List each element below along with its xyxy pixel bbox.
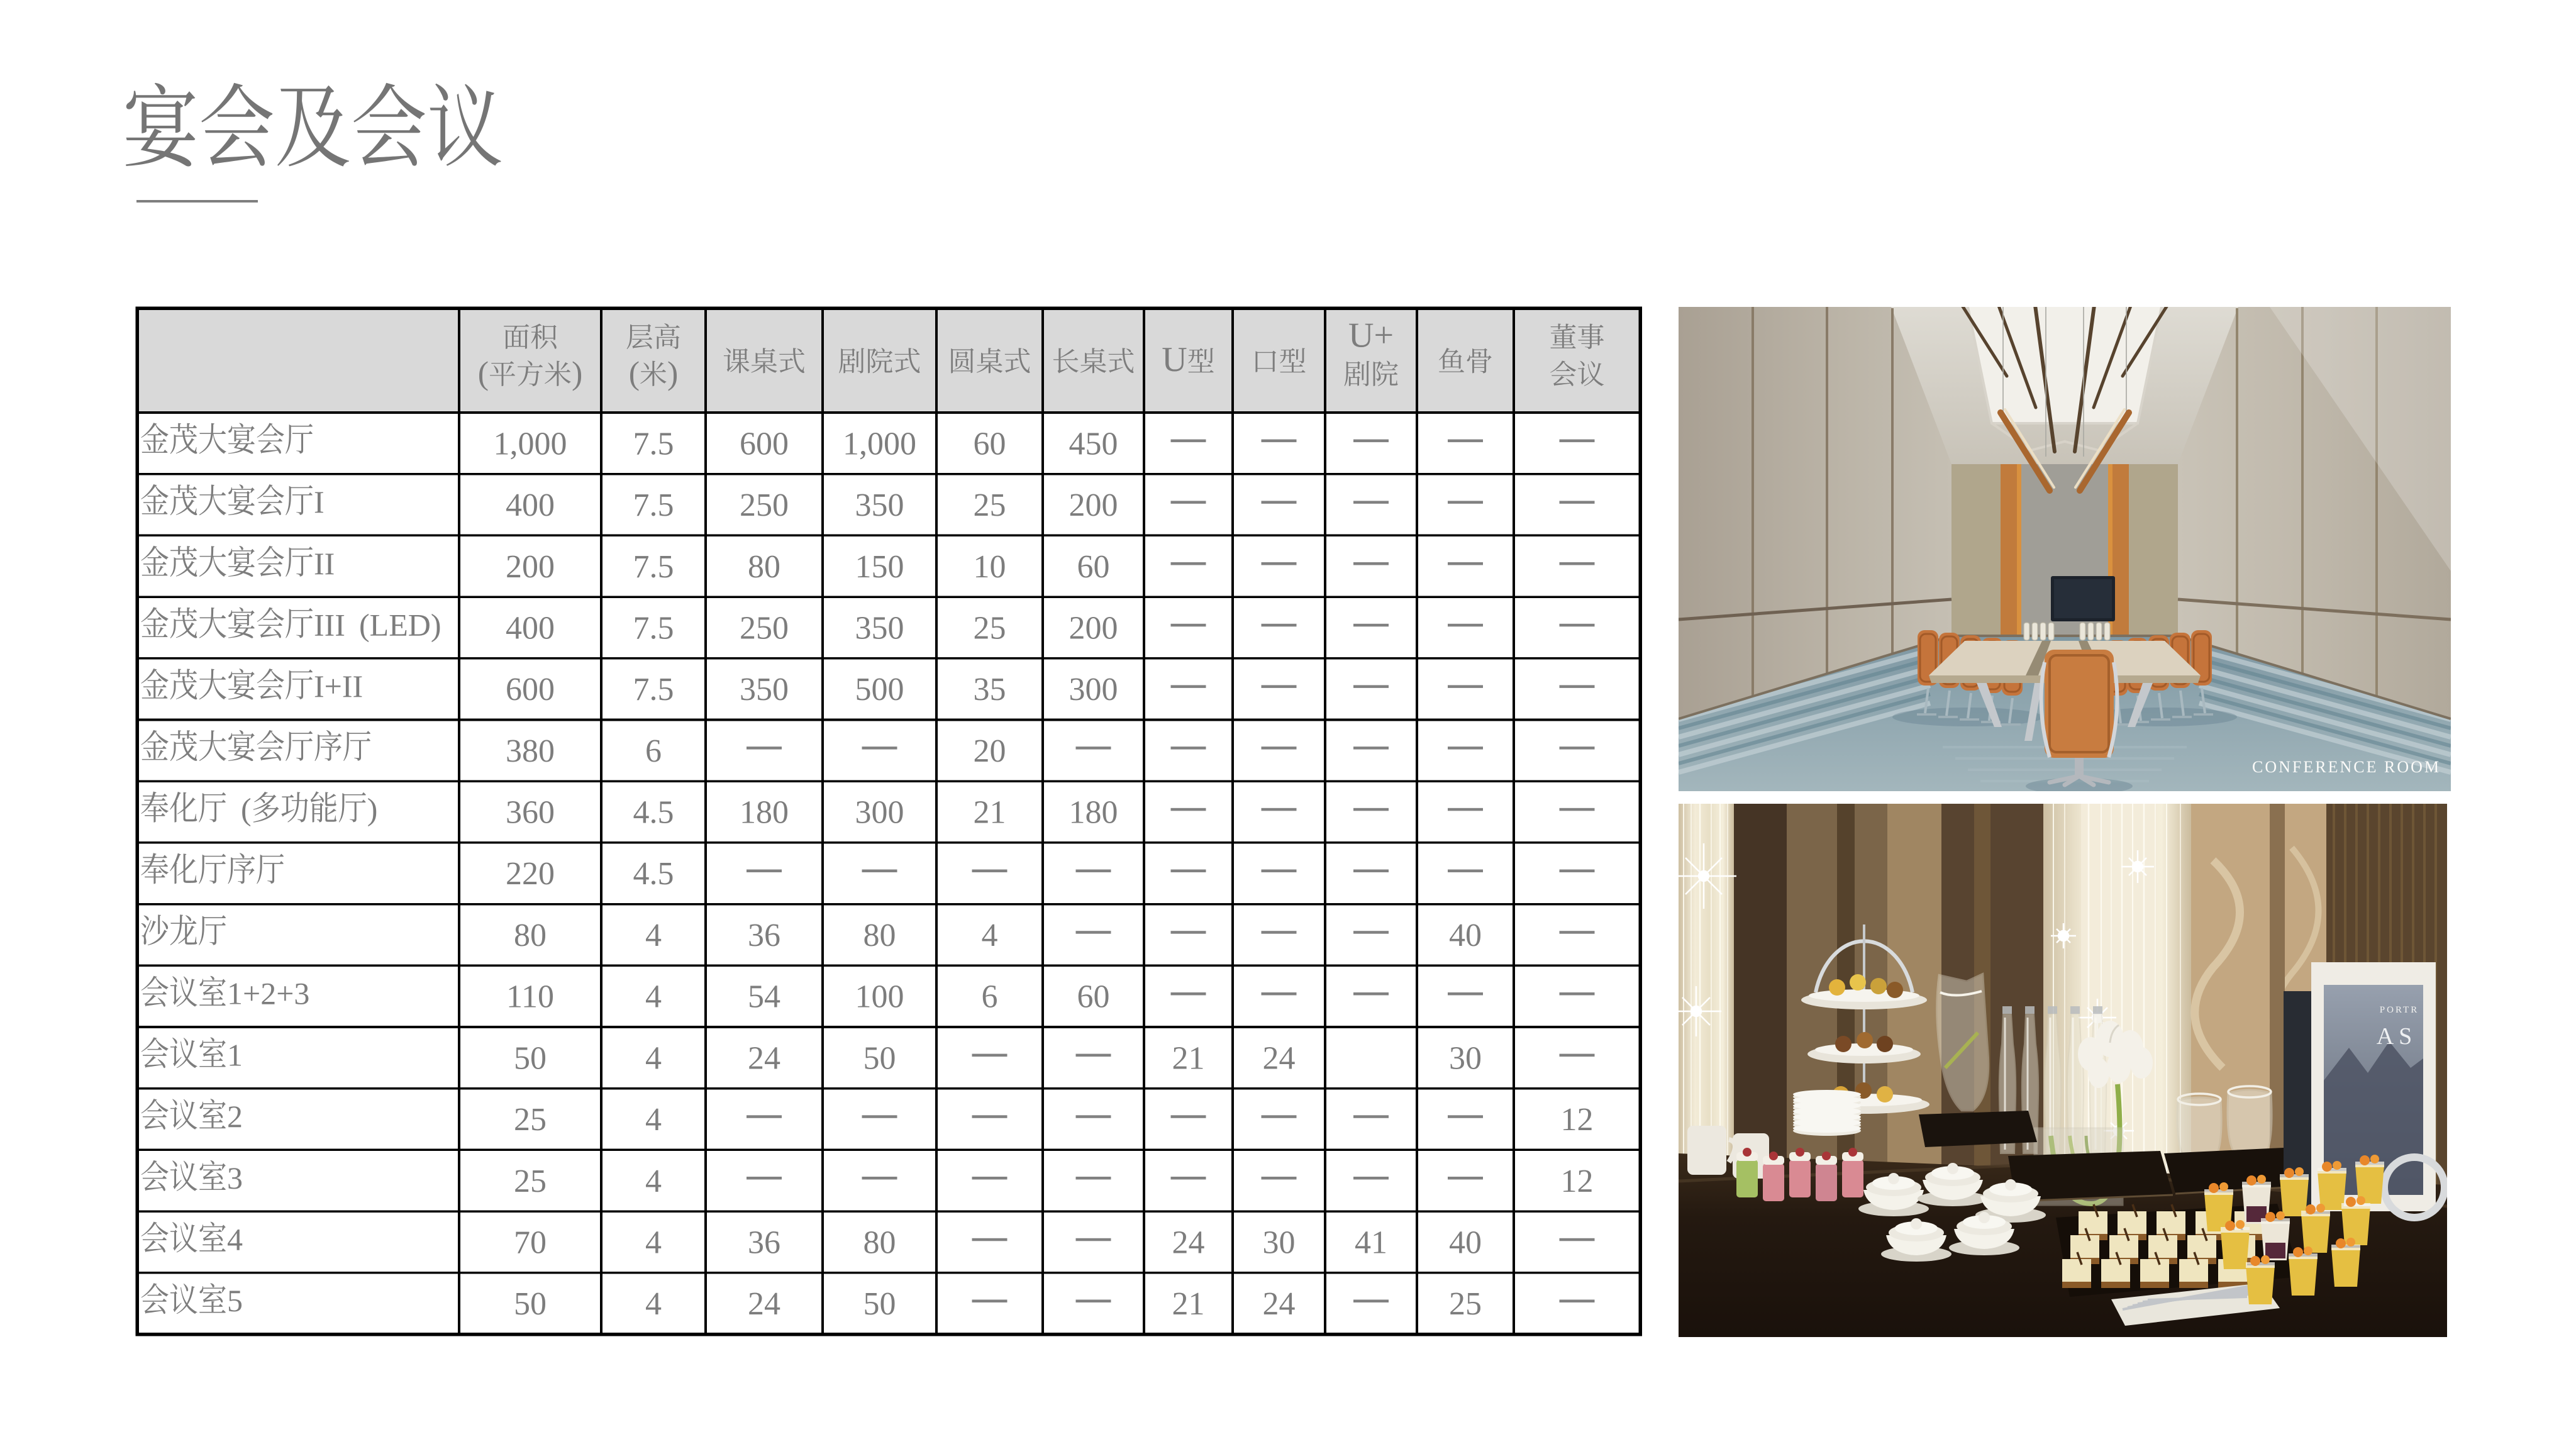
svg-text:4: 4: [645, 979, 662, 1015]
svg-text:40: 40: [1449, 1225, 1482, 1261]
svg-text:180: 180: [1069, 795, 1118, 831]
svg-text:150: 150: [855, 549, 904, 585]
svg-text:220: 220: [506, 856, 555, 892]
svg-text:40: 40: [1449, 918, 1482, 953]
svg-text:7.5: 7.5: [633, 611, 674, 647]
svg-text:350: 350: [740, 672, 789, 708]
svg-text:50: 50: [514, 1040, 547, 1076]
svg-text:5: 5: [227, 1283, 243, 1318]
svg-text:30: 30: [1449, 1040, 1482, 1076]
svg-text:400: 400: [506, 611, 555, 647]
svg-text:II: II: [314, 546, 335, 581]
svg-text:): ): [572, 356, 582, 392]
svg-text:25: 25: [974, 487, 1006, 523]
svg-text:600: 600: [740, 426, 789, 462]
svg-text:1+2+3: 1+2+3: [227, 976, 309, 1011]
svg-text:24: 24: [1263, 1040, 1296, 1076]
svg-text:4.5: 4.5: [633, 795, 674, 831]
svg-text:41: 41: [1355, 1225, 1387, 1261]
svg-text:360: 360: [506, 795, 555, 831]
svg-text:180: 180: [740, 795, 789, 831]
svg-text:300: 300: [1069, 672, 1118, 708]
svg-text:80: 80: [514, 918, 547, 953]
svg-text:100: 100: [855, 979, 904, 1015]
svg-text:24: 24: [748, 1040, 780, 1076]
svg-text:25: 25: [514, 1163, 547, 1199]
svg-text:U: U: [1162, 340, 1187, 379]
svg-text:(: (: [478, 356, 489, 392]
svg-text:60: 60: [1077, 979, 1110, 1015]
svg-text:(LED): (LED): [359, 608, 441, 643]
svg-text:36: 36: [748, 918, 780, 953]
svg-text:60: 60: [974, 426, 1006, 462]
svg-text:50: 50: [863, 1286, 896, 1322]
svg-text:6: 6: [645, 733, 662, 769]
svg-text:30: 30: [1263, 1225, 1296, 1261]
svg-text:400: 400: [506, 487, 555, 523]
svg-text:3: 3: [227, 1160, 243, 1196]
svg-text:50: 50: [863, 1040, 896, 1076]
svg-text:25: 25: [514, 1102, 547, 1138]
svg-text:4: 4: [645, 1286, 662, 1322]
svg-text:12: 12: [1561, 1163, 1594, 1199]
svg-text:4: 4: [227, 1222, 243, 1257]
svg-text:250: 250: [740, 611, 789, 647]
svg-text:I+II: I+II: [314, 669, 363, 704]
svg-text:200: 200: [1069, 611, 1118, 647]
svg-text:350: 350: [855, 611, 904, 647]
svg-text:4: 4: [645, 1102, 662, 1138]
svg-text:380: 380: [506, 733, 555, 769]
svg-text:7.5: 7.5: [633, 549, 674, 585]
svg-text:12: 12: [1561, 1102, 1594, 1138]
svg-text:III: III: [314, 608, 345, 643]
svg-text:60: 60: [1077, 549, 1110, 585]
svg-text:20: 20: [974, 733, 1006, 769]
svg-text:1: 1: [227, 1037, 243, 1072]
svg-text:25: 25: [974, 611, 1006, 647]
svg-text:AS: AS: [2377, 1023, 2418, 1050]
svg-text:24: 24: [748, 1286, 780, 1322]
svg-text:24: 24: [1263, 1286, 1296, 1322]
svg-text:50: 50: [514, 1286, 547, 1322]
svg-text:24: 24: [1172, 1225, 1205, 1261]
svg-text:): ): [367, 792, 378, 827]
svg-text:1,000: 1,000: [494, 426, 567, 462]
svg-text:70: 70: [514, 1225, 547, 1261]
svg-text:7.5: 7.5: [633, 672, 674, 708]
svg-text:21: 21: [974, 795, 1006, 831]
svg-text:(: (: [629, 356, 640, 392]
svg-text:35: 35: [974, 672, 1006, 708]
svg-text:PORTR: PORTR: [2380, 1005, 2419, 1015]
svg-text:350: 350: [855, 487, 904, 523]
svg-text:200: 200: [506, 549, 555, 585]
svg-text:4: 4: [645, 1040, 662, 1076]
svg-text:U+: U+: [1348, 316, 1394, 355]
svg-text:4: 4: [645, 918, 662, 953]
svg-text:21: 21: [1172, 1040, 1205, 1076]
svg-text:1,000: 1,000: [843, 426, 916, 462]
svg-text:21: 21: [1172, 1286, 1205, 1322]
svg-text:80: 80: [863, 1225, 896, 1261]
svg-text:80: 80: [863, 918, 896, 953]
svg-text:CONFERENCE ROOM: CONFERENCE ROOM: [2252, 758, 2441, 776]
svg-text:4.5: 4.5: [633, 856, 674, 892]
svg-text:(: (: [241, 792, 252, 827]
svg-text:54: 54: [748, 979, 780, 1015]
svg-text:7.5: 7.5: [633, 426, 674, 462]
svg-text:36: 36: [748, 1225, 780, 1261]
svg-text:10: 10: [974, 549, 1006, 585]
svg-text:I: I: [314, 484, 325, 519]
svg-text:2: 2: [227, 1099, 243, 1134]
svg-text:300: 300: [855, 795, 904, 831]
svg-text:250: 250: [740, 487, 789, 523]
svg-text:600: 600: [506, 672, 555, 708]
svg-text:110: 110: [506, 979, 554, 1015]
svg-text:80: 80: [748, 549, 780, 585]
svg-text:4: 4: [982, 918, 998, 953]
svg-text:200: 200: [1069, 487, 1118, 523]
svg-text:4: 4: [645, 1163, 662, 1199]
svg-text:500: 500: [855, 672, 904, 708]
svg-text:6: 6: [982, 979, 998, 1015]
svg-text:450: 450: [1069, 426, 1118, 462]
svg-text:25: 25: [1449, 1286, 1482, 1322]
svg-text:7.5: 7.5: [633, 487, 674, 523]
svg-text:4: 4: [645, 1225, 662, 1261]
svg-text:): ): [667, 356, 678, 392]
